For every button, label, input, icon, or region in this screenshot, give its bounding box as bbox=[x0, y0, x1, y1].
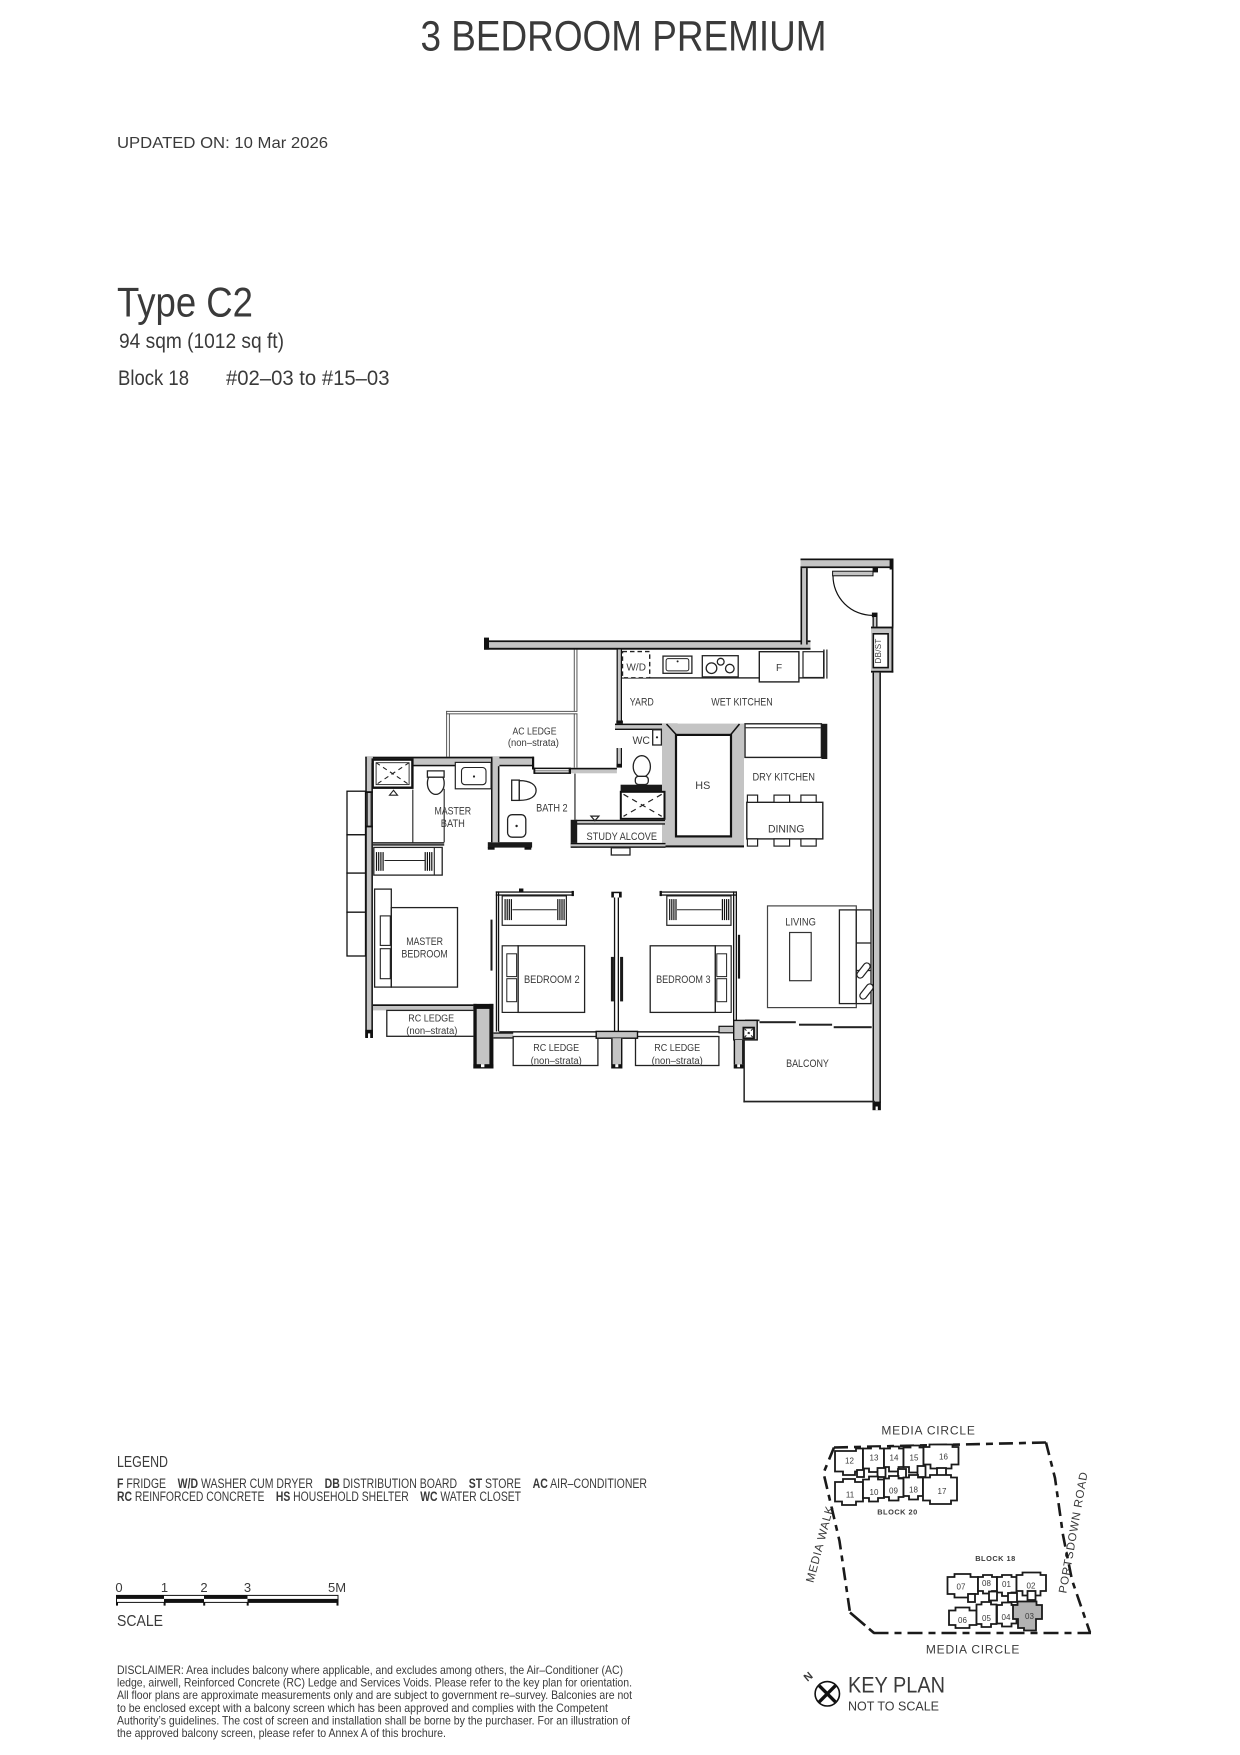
svg-text:WET KITCHEN: WET KITCHEN bbox=[711, 697, 773, 709]
svg-text:BEDROOM 3: BEDROOM 3 bbox=[656, 974, 710, 986]
svg-text:LEGEND: LEGEND bbox=[117, 1454, 168, 1471]
svg-text:BATH 2: BATH 2 bbox=[536, 803, 568, 815]
svg-text:BEDROOM: BEDROOM bbox=[401, 949, 447, 961]
svg-text:(non–strata): (non–strata) bbox=[652, 1056, 703, 1067]
svg-text:03: 03 bbox=[1025, 1612, 1034, 1621]
svg-text:F: F bbox=[776, 663, 782, 674]
svg-text:NOT TO SCALE: NOT TO SCALE bbox=[848, 1699, 939, 1714]
svg-text:BEDROOM 2: BEDROOM 2 bbox=[524, 974, 580, 986]
svg-text:07: 07 bbox=[957, 1583, 966, 1592]
svg-text:MASTER: MASTER bbox=[434, 806, 471, 818]
svg-text:UPDATED ON: 10 Mar 2026: UPDATED ON: 10 Mar 2026 bbox=[117, 135, 328, 152]
svg-text:(non–strata): (non–strata) bbox=[508, 738, 559, 749]
svg-text:AC LEDGE: AC LEDGE bbox=[513, 727, 557, 738]
svg-text:04: 04 bbox=[1002, 1613, 1011, 1622]
svg-text:STUDY ALCOVE: STUDY ALCOVE bbox=[587, 831, 658, 843]
svg-text:11: 11 bbox=[846, 1491, 855, 1500]
svg-text:(non–strata): (non–strata) bbox=[406, 1026, 457, 1037]
svg-text:02: 02 bbox=[1027, 1582, 1036, 1591]
svg-text:LIVING: LIVING bbox=[785, 916, 816, 928]
svg-text:DRY KITCHEN: DRY KITCHEN bbox=[752, 772, 815, 784]
svg-text:1: 1 bbox=[161, 1580, 168, 1595]
svg-text:BLOCK 20: BLOCK 20 bbox=[877, 1508, 918, 1517]
svg-text:YARD: YARD bbox=[630, 697, 654, 709]
svg-text:(non–strata): (non–strata) bbox=[531, 1056, 582, 1067]
svg-text:01: 01 bbox=[1002, 1580, 1011, 1589]
svg-text:MASTER: MASTER bbox=[406, 936, 443, 948]
svg-text:HS: HS bbox=[695, 780, 710, 792]
svg-text:RC LEDGE: RC LEDGE bbox=[533, 1043, 579, 1054]
svg-text:SCALE: SCALE bbox=[117, 1613, 163, 1630]
svg-text:the approved balcony screen, p: the approved balcony screen, please refe… bbox=[117, 1727, 446, 1740]
svg-text:0: 0 bbox=[115, 1580, 122, 1595]
svg-text:to be enclosed except with a b: to be enclosed except with a balcony scr… bbox=[117, 1702, 609, 1715]
svg-text:BLOCK 18: BLOCK 18 bbox=[975, 1554, 1016, 1563]
svg-text:Type C2: Type C2 bbox=[117, 279, 253, 326]
svg-text:16: 16 bbox=[939, 1453, 948, 1462]
svg-text:06: 06 bbox=[958, 1616, 967, 1625]
svg-text:#02–03 to #15–03: #02–03 to #15–03 bbox=[226, 367, 390, 390]
svg-text:KEY PLAN: KEY PLAN bbox=[848, 1673, 945, 1698]
svg-text:13: 13 bbox=[870, 1454, 879, 1463]
svg-text:All floor plans are approximat: All floor plans are approximate measurem… bbox=[117, 1689, 633, 1702]
svg-text:Authority’s guidelines. The co: Authority’s guidelines. The cost of scre… bbox=[117, 1714, 631, 1727]
svg-text:17: 17 bbox=[938, 1487, 947, 1496]
svg-text:MEDIA CIRCLE: MEDIA CIRCLE bbox=[926, 1643, 1020, 1657]
svg-text:WC: WC bbox=[632, 735, 650, 747]
svg-text:MEDIA CIRCLE: MEDIA CIRCLE bbox=[881, 1424, 975, 1438]
svg-text:09: 09 bbox=[889, 1487, 898, 1496]
svg-text:DINING: DINING bbox=[768, 824, 805, 836]
svg-text:ledge, airwell, Reinforced Con: ledge, airwell, Reinforced Concrete (RC)… bbox=[117, 1677, 632, 1690]
svg-text:DB/ST: DB/ST bbox=[874, 638, 883, 663]
svg-text:12: 12 bbox=[845, 1457, 854, 1466]
svg-text:18: 18 bbox=[909, 1486, 918, 1495]
svg-text:3 BEDROOM PREMIUM: 3 BEDROOM PREMIUM bbox=[421, 13, 827, 61]
svg-text:DISCLAIMER: Area includes balc: DISCLAIMER: Area includes balcony where … bbox=[117, 1664, 623, 1677]
svg-text:14: 14 bbox=[890, 1454, 899, 1463]
svg-text:05: 05 bbox=[982, 1614, 991, 1623]
svg-text:RC LEDGE: RC LEDGE bbox=[408, 1014, 454, 1025]
svg-text:BALCONY: BALCONY bbox=[786, 1058, 829, 1070]
svg-text:15: 15 bbox=[910, 1454, 919, 1463]
svg-text:RC LEDGE: RC LEDGE bbox=[654, 1043, 700, 1054]
svg-text:94 sqm (1012 sq ft): 94 sqm (1012 sq ft) bbox=[119, 330, 284, 353]
svg-text:BATH: BATH bbox=[441, 818, 465, 830]
svg-text:10: 10 bbox=[870, 1488, 879, 1497]
svg-text:08: 08 bbox=[982, 1579, 991, 1588]
svg-text:Block 18: Block 18 bbox=[118, 367, 189, 390]
svg-text:W/D: W/D bbox=[626, 662, 646, 673]
svg-text:2: 2 bbox=[200, 1580, 207, 1595]
svg-text:3: 3 bbox=[244, 1580, 251, 1595]
svg-text:5M: 5M bbox=[328, 1580, 346, 1595]
svg-text:RC REINFORCED CONCRETE HS H: RC REINFORCED CONCRETE HS HOUSEHOLD SHEL… bbox=[117, 1489, 521, 1504]
